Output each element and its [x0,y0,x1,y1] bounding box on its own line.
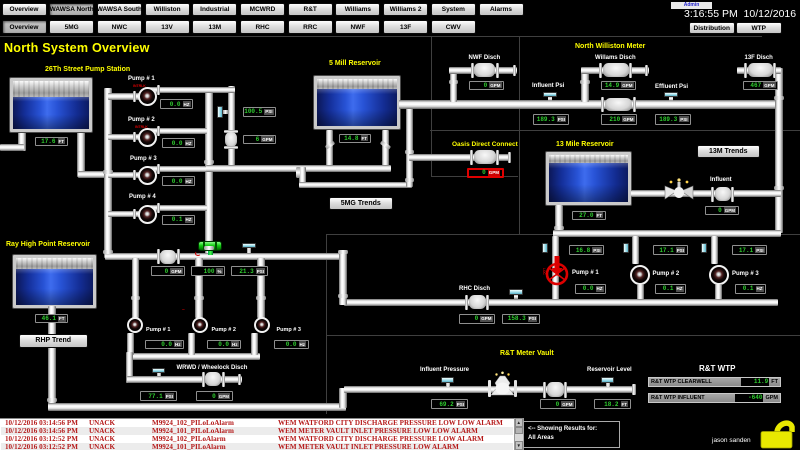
svg-text:LOC: LOC [543,268,546,275]
